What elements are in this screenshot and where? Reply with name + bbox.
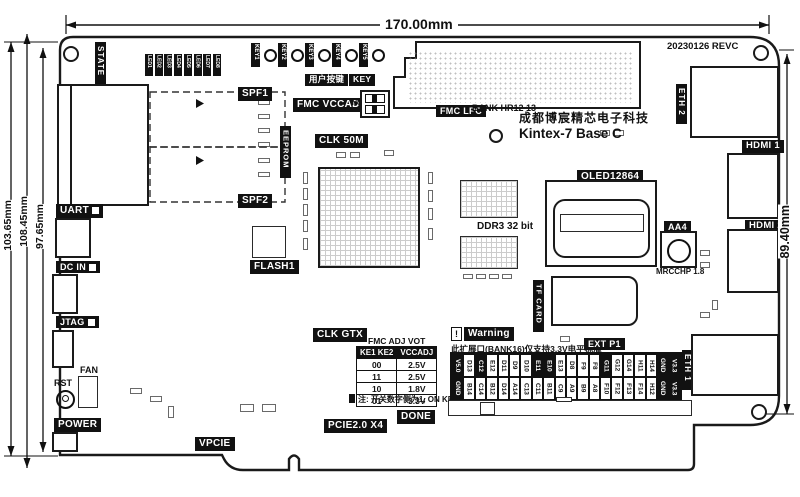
- ext-p1-col-1: V5.0GND: [452, 354, 463, 400]
- passive-component: [463, 274, 473, 279]
- passive-component: [168, 406, 174, 418]
- ext-pin-v5.0: V5.0: [452, 354, 463, 377]
- passive-component: [384, 150, 394, 156]
- ext-pin-gnd: GND: [452, 377, 463, 400]
- led-led2: LED2: [155, 54, 163, 76]
- jumper-icon: [365, 94, 385, 103]
- jtag-label-text: JTAG: [60, 317, 85, 327]
- ext-pin-e12: E12: [486, 354, 497, 377]
- fmc-table-cell: 11: [357, 371, 397, 383]
- mounting-hole-top-left: [63, 46, 79, 62]
- led-led1: LED1: [145, 54, 153, 76]
- ext-pin-f8: F8: [589, 354, 600, 377]
- note-marker: [349, 394, 355, 403]
- passive-component: [303, 188, 308, 200]
- passive-component: [428, 228, 433, 240]
- oscillator: [660, 231, 697, 268]
- led-led3: LED3: [164, 54, 172, 76]
- vpcie-label: VPCIE: [195, 437, 235, 451]
- fmc-table-cell: 2.5V: [397, 359, 437, 371]
- ext-p1-label: EXT P1: [584, 338, 625, 350]
- ext-p1-col-14: G11F10: [600, 354, 611, 400]
- passive-component: [240, 404, 254, 412]
- key1-label: KEY1: [251, 43, 260, 67]
- ext-p1-col-20: V3.3V3.3: [668, 354, 679, 400]
- dc-in-indicator: [89, 264, 96, 271]
- ext-pin-d14: D14: [498, 377, 509, 400]
- ddr3-chip-2: [460, 236, 518, 269]
- ext-pin-d8: D8: [566, 354, 577, 377]
- ext-pin-d11: D11: [498, 354, 509, 377]
- passive-component: [130, 388, 142, 394]
- ext-p1-col-18: H14H12: [646, 354, 657, 400]
- reset-button: [56, 390, 75, 409]
- led-led8: LED8: [213, 54, 221, 76]
- passive-component: [428, 208, 433, 220]
- ext-pin-c12: C12: [475, 354, 486, 377]
- user-key-array: KEY1KEY2KEY3KEY4KEY5: [251, 43, 391, 71]
- jtag-connector: [52, 330, 74, 368]
- ext-pin-f9: F9: [577, 354, 588, 377]
- uart-connector: [55, 218, 91, 258]
- ext-pin-gnd: GND: [657, 377, 668, 400]
- key-unit-key3: KEY3: [305, 43, 331, 69]
- ext-p1-col-8: E11C11: [532, 354, 543, 400]
- ext-pin-f12: F12: [611, 377, 622, 400]
- fpga-chip: [318, 167, 420, 268]
- passive-component: [712, 300, 718, 310]
- eth2-label: ETH 2: [676, 84, 687, 124]
- led-led5: LED5: [184, 54, 192, 76]
- pcie-label: PCIE2.0 X4: [324, 419, 387, 433]
- tf-card-label: TF CARD: [533, 280, 544, 332]
- fmc-table-row: 112.5V: [357, 371, 437, 383]
- ext-p1-col-4: E12B12: [486, 354, 497, 400]
- ext-pin-g12: G12: [611, 354, 622, 377]
- clk-gtx-label: CLK GTX: [313, 328, 367, 342]
- passive-component: [303, 238, 308, 250]
- clk-50m-label: CLK 50M: [315, 134, 368, 148]
- oscillator-circle: [667, 239, 691, 263]
- passive-component: [258, 114, 270, 119]
- dc-in-label-text: DC IN: [60, 262, 86, 272]
- passive-component: [303, 204, 308, 216]
- ext-p1-keying-square: [480, 402, 495, 415]
- eeprom-label: EEPROM: [280, 126, 291, 178]
- ext-pin-v3.3: V3.3: [668, 377, 679, 400]
- passive-component: [150, 396, 162, 402]
- key3-button: [318, 49, 331, 62]
- key2-button: [291, 49, 304, 62]
- uart-indicator: [92, 207, 99, 214]
- key5-label: KEY5: [359, 43, 368, 67]
- power-label: POWER: [54, 418, 101, 432]
- user-key-label-2: KEY: [349, 74, 375, 86]
- key4-label: KEY4: [332, 43, 341, 67]
- fan-connector: [78, 376, 98, 408]
- passive-component: [489, 274, 499, 279]
- dimension-left-3: 97.65mm: [34, 204, 46, 249]
- fmc-table-header-1: KE1 KE2: [357, 347, 397, 359]
- key5-button: [372, 49, 385, 62]
- fmc-table-row: 101.8V: [357, 383, 437, 395]
- dc-jack: [52, 274, 78, 314]
- dc-in-label: DC IN: [56, 261, 100, 273]
- ext-pin-e10: E10: [543, 354, 554, 377]
- ext-pin-h11: H11: [634, 354, 645, 377]
- company-name: 成都博宸精芯电子科技: [519, 109, 649, 126]
- ext-pin-d10: D10: [520, 354, 531, 377]
- ext-pin-f13: F13: [623, 377, 634, 400]
- jtag-label: JTAG: [56, 316, 99, 328]
- tf-card-slot: [551, 276, 638, 326]
- sfp-cage-inner-wall: [70, 85, 72, 205]
- ext-pin-b14: B14: [463, 377, 474, 400]
- ext-pin-h14: H14: [646, 354, 657, 377]
- ext-p1-col-19: GNDGND: [657, 354, 668, 400]
- eth1-connector: [691, 334, 779, 396]
- uart-label: UART: [56, 204, 103, 218]
- ext-p1-col-3: C12C14: [475, 354, 486, 400]
- jumper-icon: [365, 105, 385, 114]
- led-led7: LED7: [203, 54, 211, 76]
- passive-component: [350, 152, 360, 158]
- fmc-pin-grid: [408, 51, 634, 103]
- state-led-label: STATE: [95, 42, 106, 90]
- ext-p1-col-11: D8A9: [566, 354, 577, 400]
- ext-pin-gnd: GND: [657, 354, 668, 377]
- uart-label-text: UART: [60, 205, 89, 216]
- passive-component: [303, 220, 308, 232]
- power-switch: [52, 432, 78, 452]
- passive-component: [258, 158, 270, 163]
- ext-pin-c11: C11: [532, 377, 543, 400]
- mounting-hole-bottom-right: [751, 404, 767, 420]
- ext-pin-b12: B12: [486, 377, 497, 400]
- passive-component: [560, 336, 570, 342]
- key-unit-key1: KEY1: [251, 43, 277, 69]
- done-label: DONE: [397, 410, 435, 424]
- ext-pin-b9: B9: [577, 377, 588, 400]
- ext-pin-f10: F10: [600, 377, 611, 400]
- ext-pin-g11: G11: [600, 354, 611, 377]
- ext-p1-col-13: F8A8: [589, 354, 600, 400]
- fmc-table-cell: 00: [357, 359, 397, 371]
- product-name: Kintex-7 Base C: [519, 126, 622, 141]
- dimension-right: 89.40mm: [778, 205, 792, 259]
- ddr3-chip-1: [460, 180, 518, 218]
- user-key-label: 用户按键: [305, 74, 348, 86]
- passive-component: [700, 312, 710, 318]
- ext-pin-b11: B11: [543, 377, 554, 400]
- passive-component: [502, 274, 512, 279]
- ext-p1-col-7: D10C13: [520, 354, 531, 400]
- led-led4: LED4: [174, 54, 182, 76]
- warning-mark: !: [451, 327, 462, 341]
- passive-component: [428, 172, 433, 184]
- key3-label: KEY3: [305, 43, 314, 67]
- ext-pin-v3.3: V3.3: [668, 354, 679, 377]
- ext-p1-col-10: E13C9: [555, 354, 566, 400]
- warning-label: Warning: [464, 327, 514, 341]
- ext-p1-col-15: G12F12: [611, 354, 622, 400]
- led-led6: LED6: [194, 54, 202, 76]
- key-unit-key4: KEY4: [332, 43, 358, 69]
- mounting-hole-center: [489, 129, 503, 143]
- passive-component: [258, 142, 270, 147]
- mrcchp-text: MRCCHP 1.8: [656, 267, 704, 276]
- ext-pin-d13: D13: [463, 354, 474, 377]
- fmc-table-cell: 1.8V: [397, 383, 437, 395]
- key4-button: [345, 49, 358, 62]
- hdmi2-connector: [727, 229, 779, 293]
- ext-pin-c14: C14: [475, 377, 486, 400]
- revision-text: 20230126 REVC: [667, 41, 738, 52]
- ext-pin-d9: D9: [509, 354, 520, 377]
- ext-pin-f14: F14: [634, 377, 645, 400]
- fmc-table-cell: 2.5V: [397, 371, 437, 383]
- passive-component: [476, 274, 486, 279]
- oled-active-area: [560, 214, 644, 232]
- passive-component: [303, 172, 308, 184]
- ext-pin-g14: G14: [623, 354, 634, 377]
- ext-pin-e13: E13: [555, 354, 566, 377]
- ext-p1-col-17: H11F14: [634, 354, 645, 400]
- hdmi1-connector: [727, 153, 779, 219]
- ext-p1-col-9: E10B11: [543, 354, 554, 400]
- dimension-left-1: 103.65mm: [2, 200, 14, 251]
- reset-button-center: [62, 395, 69, 402]
- led-array: LED1LED2LED3LED4LED5LED6LED7LED8: [145, 54, 225, 78]
- passive-component: [258, 172, 270, 177]
- flash-chip: [252, 226, 286, 258]
- ext-pin-c13: C13: [520, 377, 531, 400]
- mounting-hole-top-right: [753, 45, 769, 61]
- fmc-table-row: 002.5V: [357, 359, 437, 371]
- ext-p1-header: V5.0GNDD13B14C12C14E12B12D11D14D9A14D10C…: [450, 352, 682, 402]
- passive-component: [262, 404, 276, 412]
- passive-component: [258, 100, 270, 105]
- ext-p1-col-5: D11D14: [498, 354, 509, 400]
- key-unit-key5: KEY5: [359, 43, 385, 69]
- fmc-table-header-2: VCCADJ: [397, 347, 437, 359]
- key-unit-key2: KEY2: [278, 43, 304, 69]
- key2-label: KEY2: [278, 43, 287, 67]
- ext-p1-col-6: D9A14: [509, 354, 520, 400]
- dimension-left-2: 108.45mm: [18, 196, 30, 247]
- vccadj-jumper-block: [360, 90, 390, 118]
- ext-p1-tab: [556, 397, 572, 402]
- ext-p1-col-12: F9B9: [577, 354, 588, 400]
- ddr3-label: DDR3 32 bit: [477, 221, 533, 232]
- flash-label: FLASH1: [250, 260, 299, 274]
- ext-pin-e11: E11: [532, 354, 543, 377]
- hdmi1-label: HDMI 1: [742, 140, 784, 153]
- ext-p1-col-2: D13B14: [463, 354, 474, 400]
- passive-component: [258, 128, 270, 133]
- ext-pin-h12: H12: [646, 377, 657, 400]
- jtag-indicator: [88, 319, 95, 326]
- pcb-silkscreen-diagram: 170.00mm 103.65mm 108.45mm 97.65mm 89.40…: [0, 0, 800, 497]
- fmc-table-cell: 10: [357, 383, 397, 395]
- sfp2-label: SPF2: [238, 194, 272, 208]
- fmc-table-title: FMC ADJ VOT: [368, 336, 425, 346]
- ext-p1-col-16: G14F13: [623, 354, 634, 400]
- passive-component: [336, 152, 346, 158]
- fan-label: FAN: [80, 365, 98, 375]
- dimension-top: 170.00mm: [380, 16, 458, 32]
- passive-component: [700, 250, 710, 256]
- ext-pin-a8: A8: [589, 377, 600, 400]
- ext-pin-a14: A14: [509, 377, 520, 400]
- passive-component: [428, 190, 433, 202]
- eth2-connector: [690, 66, 779, 138]
- key1-button: [264, 49, 277, 62]
- rst-label: RST: [54, 378, 72, 388]
- sfp1-label: SPF1: [238, 87, 272, 101]
